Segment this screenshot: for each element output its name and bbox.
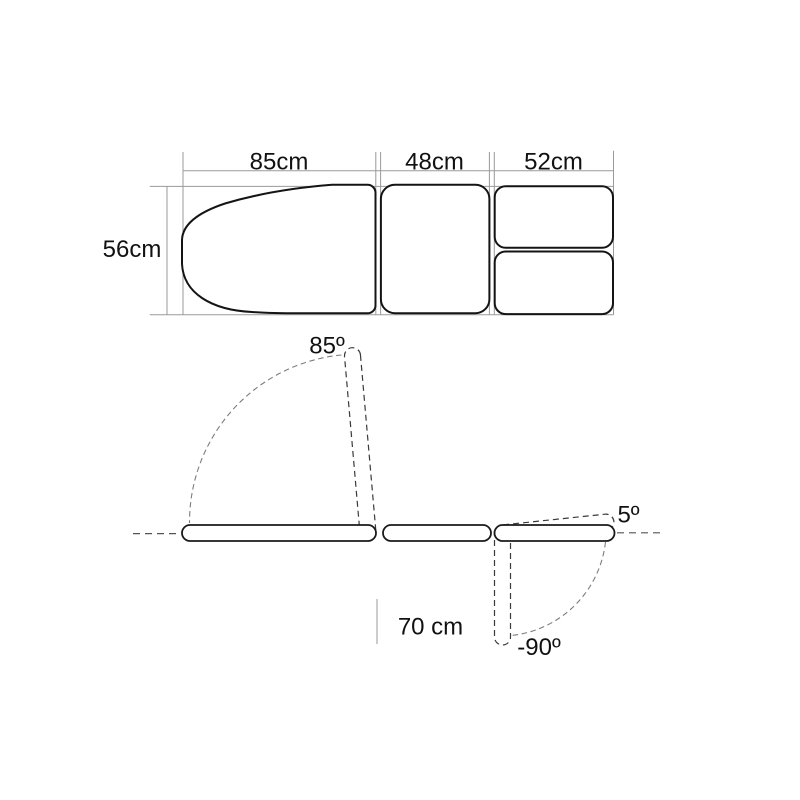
svg-text:48cm: 48cm — [405, 149, 464, 176]
svg-text:56cm: 56cm — [103, 236, 162, 263]
svg-text:85cm: 85cm — [250, 149, 309, 176]
svg-text:5º: 5º — [617, 502, 639, 529]
svg-text:85º: 85º — [309, 333, 345, 360]
svg-text:52cm: 52cm — [524, 149, 583, 176]
svg-text:-90º: -90º — [517, 634, 561, 661]
svg-text:70 cm: 70 cm — [398, 614, 463, 641]
